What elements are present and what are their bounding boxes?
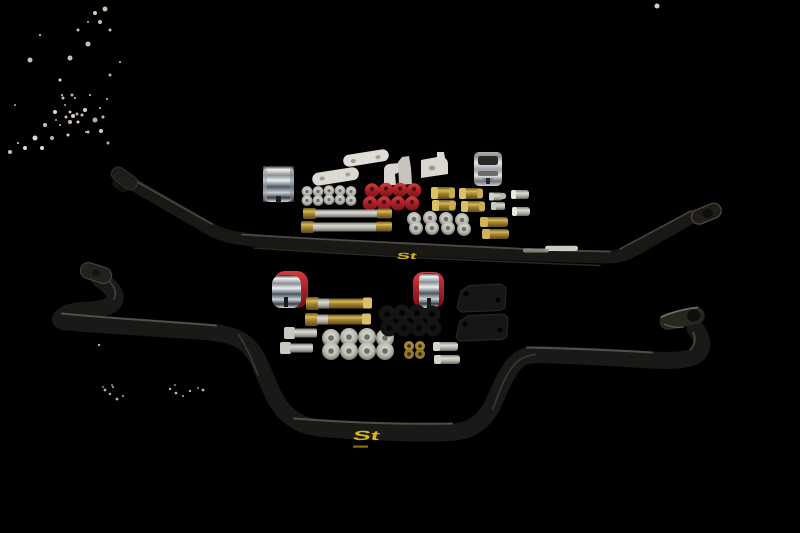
- svg-text:St: St: [351, 429, 381, 443]
- svg-text:St: St: [395, 251, 417, 261]
